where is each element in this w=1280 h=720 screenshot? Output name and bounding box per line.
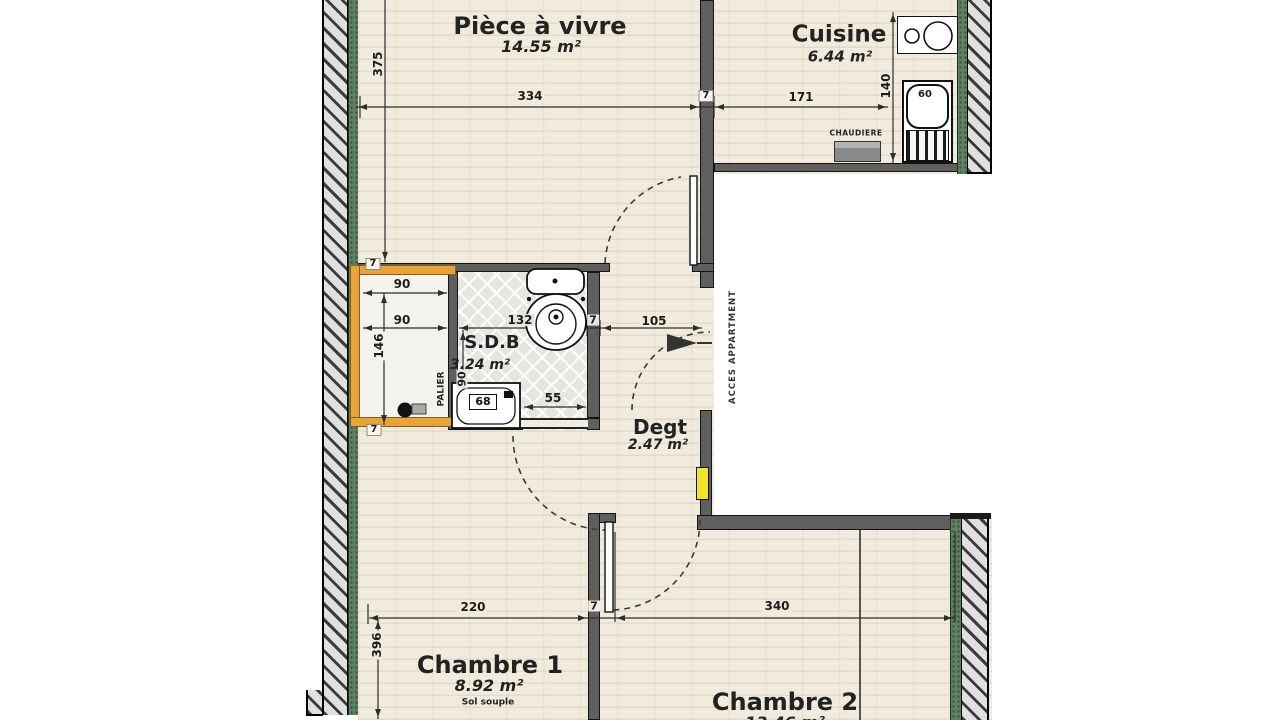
dimension-arrows	[359, 14, 952, 717]
room-label-cuisine: Cuisine	[792, 24, 887, 47]
dim-55: 55	[543, 392, 564, 404]
room-label-chambre1: Chambre 1	[417, 653, 563, 677]
door-leaf-living	[690, 176, 697, 265]
dim-90-b: 90	[392, 314, 413, 326]
access-label: ACCES APPARTMENT	[729, 290, 738, 404]
dim-396: 396	[371, 630, 383, 659]
dim-334: 334	[515, 90, 544, 102]
palier-drain-icon	[398, 403, 427, 418]
dim-171: 171	[786, 91, 815, 103]
room-label-sdb: S.D.B	[464, 334, 519, 352]
dim-220: 220	[458, 601, 487, 613]
boiler-label: CHAUDIERE	[830, 129, 883, 137]
dim-68-vanity: 68	[469, 394, 497, 410]
plan-annotations-svg	[0, 0, 1280, 720]
dim-60: 60	[916, 90, 934, 100]
door-leaves	[605, 176, 697, 612]
dim-7-top: 7	[699, 90, 714, 102]
dim-146: 146	[373, 331, 385, 360]
door-leaf-chambre2	[605, 522, 613, 612]
dimension-lines	[357, 0, 955, 719]
dim-7-palier-bottom: 7	[367, 424, 382, 436]
room-area-chambre1: 8.92 m²	[455, 678, 524, 694]
room-area-cuisine: 6.44 m²	[808, 50, 872, 65]
dim-7-palier-top: 7	[366, 258, 381, 270]
door-arc-chambre1	[513, 436, 607, 530]
entry-arrow	[667, 334, 712, 352]
room-label-living: Pièce à vivre	[453, 14, 626, 38]
room-note-chambre1: Sol souple	[462, 699, 514, 708]
palier-label: PALIER	[438, 372, 447, 407]
dim-90-a: 90	[392, 278, 413, 290]
dim-105: 105	[639, 315, 668, 327]
dim-7-bottom: 7	[588, 601, 600, 612]
dim-90-sdb: 90	[457, 369, 468, 388]
door-arc-chambre2	[610, 520, 700, 610]
toilet-icon	[526, 269, 586, 350]
room-area-degt: 2.47 m²	[628, 438, 688, 452]
room-area-chambre2: 13.46 m²	[745, 715, 825, 720]
room-label-chambre2: Chambre 2	[712, 690, 858, 714]
dim-132: 132	[505, 314, 534, 326]
dim-7-sdb: 7	[587, 315, 599, 326]
kitchen-sink-icon	[905, 22, 952, 50]
room-area-living: 14.55 m²	[501, 39, 581, 55]
door-arc-living	[605, 177, 681, 263]
floor-plan: Pièce à vivre 14.55 m² Cuisine 6.44 m² S…	[0, 0, 1280, 720]
dim-340: 340	[762, 600, 791, 612]
dim-140: 140	[880, 71, 892, 100]
room-label-degt: Degt	[633, 417, 687, 437]
dim-375: 375	[372, 49, 384, 78]
